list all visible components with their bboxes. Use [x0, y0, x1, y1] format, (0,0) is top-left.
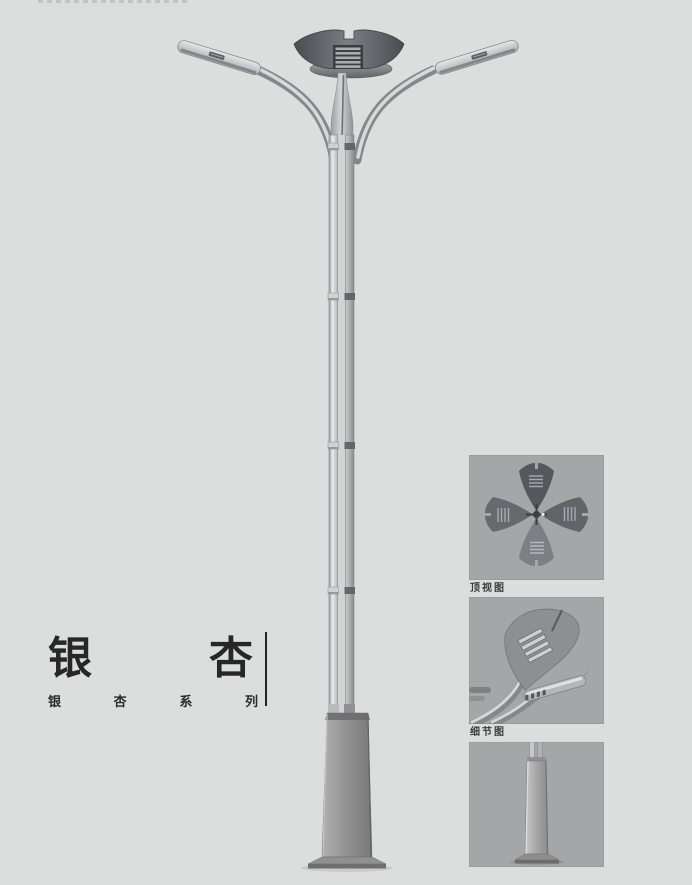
- lamp-arm-right: [357, 68, 434, 160]
- series-char: 列: [245, 691, 258, 710]
- top-view-caption: 顶视图: [470, 583, 604, 595]
- detail-view-image: [469, 597, 604, 724]
- series-char: 银: [48, 691, 61, 710]
- pole-base: [322, 713, 372, 857]
- product-title: 银 杏: [48, 636, 253, 682]
- lamp-arm-left: [257, 68, 334, 160]
- detail-panel-top-view: [469, 455, 604, 580]
- base-flange: [301, 857, 393, 872]
- title-char: 银: [48, 636, 92, 682]
- detail-panel-base-view: [469, 742, 604, 867]
- title-divider-line: [265, 632, 267, 706]
- base-column-detail: [510, 742, 564, 865]
- catalog-page: 银 杏 银 杏 系 列: [0, 0, 692, 885]
- top-view-image: [469, 455, 604, 580]
- lamp-head-left: [176, 39, 262, 76]
- lamp-crown: [294, 30, 404, 140]
- detail-panel-detail-view: [469, 597, 604, 724]
- lamp-head-right: [434, 39, 520, 76]
- detail-view-caption: 细节图: [470, 727, 604, 739]
- base-view-image: [469, 742, 604, 867]
- base-view-caption: [470, 870, 604, 882]
- series-char: 杏: [114, 691, 127, 710]
- lamp-pole: [328, 135, 355, 713]
- series-char: 系: [179, 691, 192, 710]
- detail-panels-column: 顶视图: [469, 455, 604, 884]
- ginkgo-cross-top-view: [485, 463, 588, 566]
- title-char: 杏: [209, 636, 253, 682]
- product-series-label: 银 杏 系 列: [48, 691, 258, 710]
- title-block: 银 杏 银 杏 系 列: [48, 636, 270, 710]
- ginkgo-leaf-detail: [505, 609, 579, 690]
